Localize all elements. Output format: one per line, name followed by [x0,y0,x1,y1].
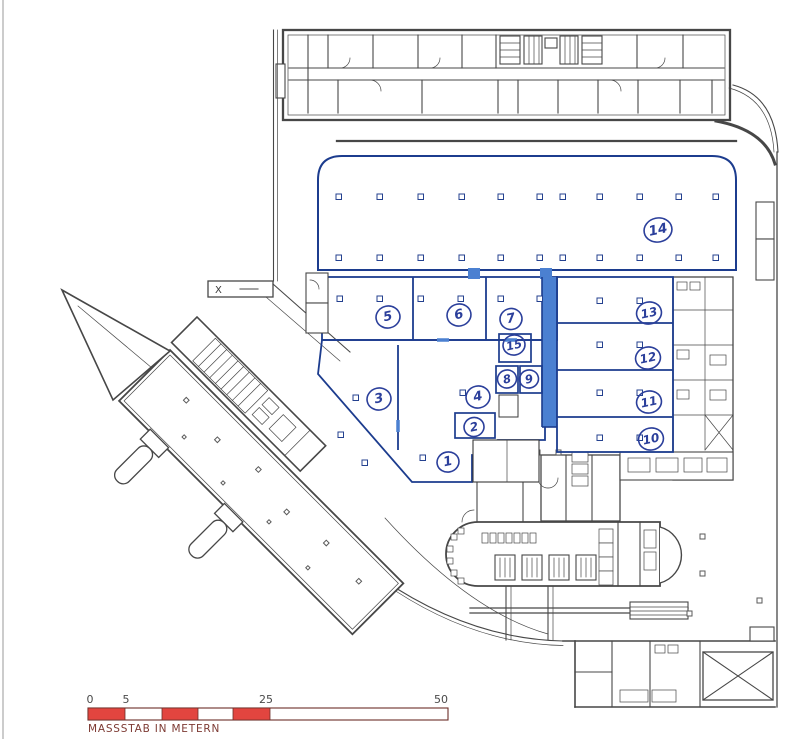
scale-tick-25: 25 [259,693,273,706]
scale-segment-red [233,708,270,720]
floor-plan-canvas: X [0,0,800,739]
scale-tick-50: 50 [434,693,448,706]
scale-segment-red [162,708,198,720]
scale-tick-5: 5 [123,693,130,706]
scale-segment-red [88,708,125,720]
section-marker-label: X [215,285,222,296]
cafeteria-counter [482,533,536,543]
corridor-area [542,277,557,427]
top-wing-building [276,30,730,120]
central-lobby [535,450,620,521]
left-stair-rooms [306,273,328,333]
scale-tick-0: 0 [87,693,94,706]
cafeteria-building [446,510,681,586]
floor-plan-page: X [0,0,800,739]
scale-caption: MASSSTAB IN METERN [88,723,220,735]
